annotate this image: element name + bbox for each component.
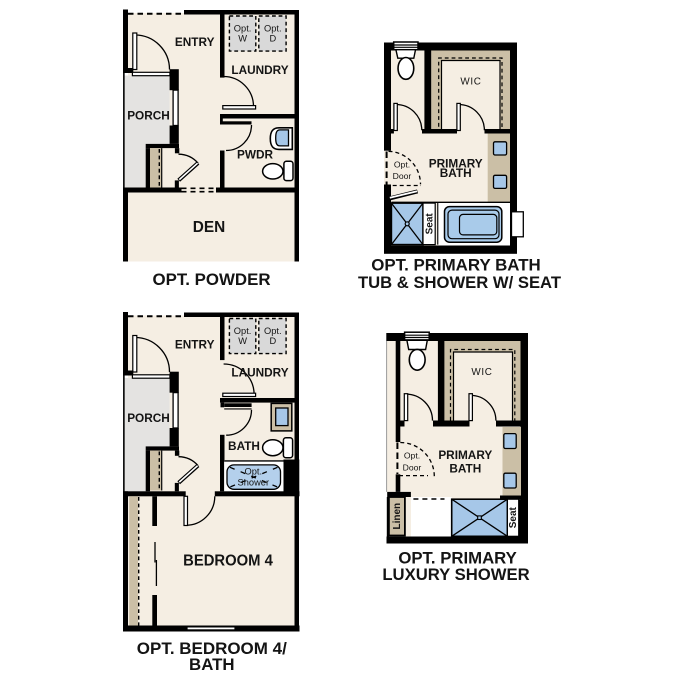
svg-text:PRIMARY: PRIMARY <box>438 448 492 462</box>
svg-text:Seat: Seat <box>424 213 435 235</box>
svg-text:Shower: Shower <box>238 477 270 487</box>
svg-text:PORCH: PORCH <box>127 411 170 425</box>
svg-text:BATH: BATH <box>449 461 481 475</box>
svg-text:D: D <box>269 34 276 44</box>
svg-text:LAUNDRY: LAUNDRY <box>231 366 288 380</box>
svg-text:BATH: BATH <box>440 166 472 180</box>
svg-text:OPT. POWDER: OPT. POWDER <box>153 270 271 289</box>
svg-text:BEDROOM 4: BEDROOM 4 <box>183 552 273 569</box>
svg-text:Seat: Seat <box>508 506 519 528</box>
svg-text:Opt.: Opt. <box>264 326 282 336</box>
svg-text:WIC: WIC <box>460 77 481 88</box>
svg-text:Door: Door <box>403 463 422 473</box>
svg-text:WIC: WIC <box>471 367 492 378</box>
svg-text:Opt.: Opt. <box>234 24 252 34</box>
svg-text:DEN: DEN <box>193 219 226 236</box>
svg-text:Opt.: Opt. <box>245 466 263 476</box>
svg-text:ENTRY: ENTRY <box>175 35 215 49</box>
svg-text:OPT. PRIMARY BATH: OPT. PRIMARY BATH <box>371 255 541 274</box>
svg-text:ENTRY: ENTRY <box>175 338 215 352</box>
svg-text:BATH: BATH <box>189 655 235 674</box>
svg-text:LUXURY SHOWER: LUXURY SHOWER <box>382 565 529 584</box>
svg-text:Door: Door <box>393 171 412 181</box>
svg-text:Opt.: Opt. <box>234 326 252 336</box>
svg-text:D: D <box>269 336 276 346</box>
svg-text:PORCH: PORCH <box>127 108 170 122</box>
svg-text:BATH: BATH <box>228 439 260 453</box>
svg-text:W: W <box>238 34 247 44</box>
svg-text:TUB & SHOWER W/ SEAT: TUB & SHOWER W/ SEAT <box>358 273 562 292</box>
svg-text:PWDR: PWDR <box>237 147 274 161</box>
svg-text:Opt.: Opt. <box>264 24 282 34</box>
svg-text:LAUNDRY: LAUNDRY <box>231 63 288 77</box>
svg-text:W: W <box>238 336 247 346</box>
svg-text:Linen: Linen <box>392 503 403 530</box>
svg-text:Opt.: Opt. <box>404 451 420 461</box>
svg-text:Opt.: Opt. <box>394 160 410 170</box>
